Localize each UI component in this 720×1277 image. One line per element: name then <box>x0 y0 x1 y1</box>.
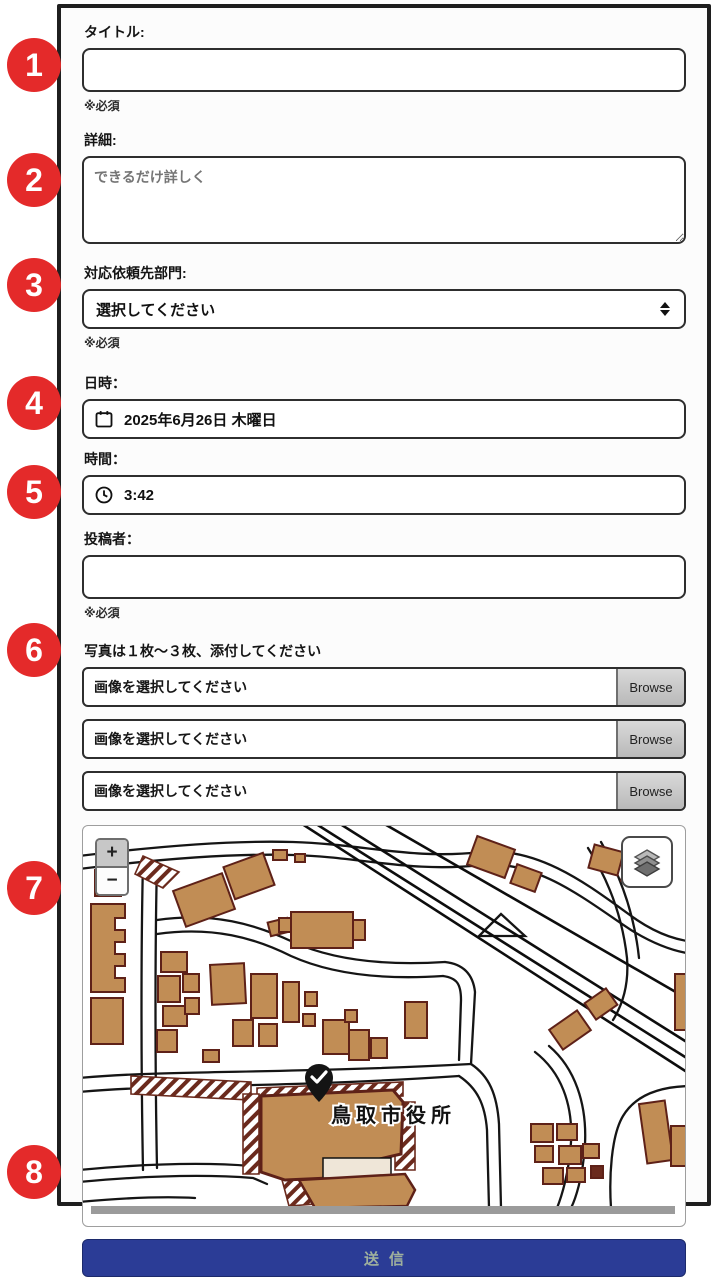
submit-button[interactable]: 送信 <box>82 1239 686 1277</box>
map-layers-button[interactable] <box>621 836 673 888</box>
map-canvas: 鳥取市役所 <box>83 826 686 1208</box>
date-section: 日時： 2025年6月26日 木曜日 <box>82 373 686 439</box>
title-label: タイトル: <box>84 22 686 42</box>
time-label: 時間： <box>84 449 686 469</box>
title-input[interactable] <box>82 48 686 92</box>
photo-placeholder-1: 画像を選択してください <box>84 669 616 705</box>
map-horizontal-scrollbar[interactable] <box>91 1206 675 1214</box>
browse-button-1[interactable]: Browse <box>616 669 684 705</box>
author-section: 投稿者： ※必須 <box>82 529 686 621</box>
browse-button-2[interactable]: Browse <box>616 721 684 757</box>
annotation-badge-4: 4 <box>7 376 61 430</box>
annotation-badge-1: 1 <box>7 38 61 92</box>
layers-icon <box>632 847 662 877</box>
annotation-badge-8: 8 <box>7 1145 61 1199</box>
author-required-note: ※必須 <box>84 604 686 621</box>
form-frame: タイトル: ※必須 詳細: 対応依頼先部門: 選択してください ※必須 日時： … <box>57 4 711 1206</box>
annotation-badge-7: 7 <box>7 861 61 915</box>
details-textarea[interactable] <box>82 156 686 244</box>
annotation-badge-2: 2 <box>7 153 61 207</box>
date-input[interactable]: 2025年6月26日 木曜日 <box>82 399 686 439</box>
author-input[interactable] <box>82 555 686 599</box>
department-selected-option: 選択してください <box>96 299 215 320</box>
department-section: 対応依頼先部門: 選択してください ※必須 <box>82 263 686 351</box>
time-section: 時間： 3:42 <box>82 449 686 515</box>
photo-placeholder-2: 画像を選択してください <box>84 721 616 757</box>
annotation-badge-6: 6 <box>7 623 61 677</box>
select-arrows-icon <box>660 302 670 316</box>
photos-label: 写真は１枚〜３枚、添付してください <box>84 641 686 661</box>
title-section: タイトル: ※必須 <box>82 22 686 114</box>
photo-file-input-3[interactable]: 画像を選択してください Browse <box>82 771 686 811</box>
time-value: 3:42 <box>124 487 154 504</box>
details-section: 詳細: <box>82 130 686 249</box>
zoom-out-button[interactable]: − <box>97 868 127 894</box>
photo-file-input-1[interactable]: 画像を選択してください Browse <box>82 667 686 707</box>
department-label: 対応依頼先部門: <box>84 263 686 283</box>
photo-file-input-2[interactable]: 画像を選択してください Browse <box>82 719 686 759</box>
calendar-icon <box>94 409 114 429</box>
browse-button-3[interactable]: Browse <box>616 773 684 809</box>
department-select[interactable]: 選択してください <box>82 289 686 329</box>
date-label: 日時： <box>84 373 686 393</box>
title-required-note: ※必須 <box>84 97 686 114</box>
map-place-label: 鳥取市役所 <box>331 1103 456 1127</box>
author-label: 投稿者： <box>84 529 686 549</box>
clock-icon <box>94 485 114 505</box>
department-required-note: ※必須 <box>84 334 686 351</box>
photo-placeholder-3: 画像を選択してください <box>84 773 616 809</box>
date-value: 2025年6月26日 木曜日 <box>124 409 277 430</box>
map-zoom-control: + − <box>95 838 129 896</box>
zoom-in-button[interactable]: + <box>97 840 127 868</box>
annotation-badge-5: 5 <box>7 465 61 519</box>
annotation-badge-3: 3 <box>7 258 61 312</box>
time-input[interactable]: 3:42 <box>82 475 686 515</box>
location-map[interactable]: 鳥取市役所 + − <box>82 825 686 1227</box>
details-label: 詳細: <box>84 130 686 150</box>
photos-section: 写真は１枚〜３枚、添付してください 画像を選択してください Browse 画像を… <box>82 641 686 811</box>
